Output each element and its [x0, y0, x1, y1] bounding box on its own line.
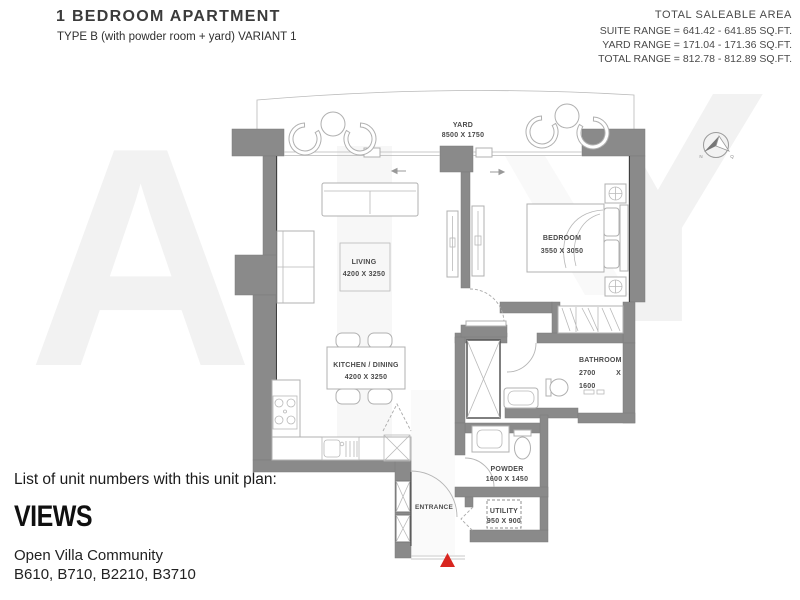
views-logo: VIEWS — [14, 500, 92, 534]
nightstand-icon — [605, 277, 626, 296]
svg-text:2700: 2700 — [579, 370, 596, 377]
headboard — [620, 205, 628, 271]
label-yard: YARD — [453, 122, 473, 129]
svg-text:N: N — [699, 154, 702, 159]
pillow-icon — [604, 208, 619, 236]
page-title: 1 BEDROOM APARTMENT — [56, 8, 281, 26]
label-living: LIVING — [352, 259, 377, 266]
unit-numbers: B610, B710, B2210, B3710 — [14, 566, 196, 583]
dining-chair-icon — [368, 333, 392, 348]
svg-text:X: X — [616, 370, 621, 377]
svg-text:8500 X 1750: 8500 X 1750 — [442, 132, 484, 139]
hall-pocket-door — [466, 321, 506, 326]
saleable-area-heading: TOTAL SALEABLE AREA — [598, 9, 792, 21]
svg-text:3550 X 3050: 3550 X 3050 — [541, 248, 583, 255]
svg-text:4200 X 3250: 4200 X 3250 — [343, 271, 385, 278]
pillow-icon — [604, 240, 619, 268]
community-name: Open Villa Community — [14, 547, 163, 564]
floor-shade — [411, 390, 455, 555]
label-utility: UTILITY — [490, 508, 518, 515]
powder-toilet-icon — [514, 430, 531, 459]
total-range: TOTAL RANGE = 812.78 - 812.89 SQ.FT. — [598, 52, 792, 66]
saleable-area-block: TOTAL SALEABLE AREA SUITE RANGE = 641.42… — [598, 9, 792, 66]
unit-list-heading: List of unit numbers with this unit plan… — [14, 471, 277, 489]
shaft-icon — [396, 481, 410, 542]
kitchen-counter — [272, 380, 300, 437]
shower-icon — [467, 340, 500, 418]
compass-icon: N Q — [699, 133, 734, 160]
toilet-icon — [546, 379, 568, 396]
floor-plan: N Q YARD 8500 X 1750 LIVING 4200 X 3250 … — [0, 0, 800, 600]
svg-text:950 X 900: 950 X 900 — [487, 518, 521, 525]
svg-text:1600 X 1450: 1600 X 1450 — [486, 476, 528, 483]
dining-chair-icon — [368, 389, 392, 404]
nightstand-icon — [605, 184, 626, 203]
kitchen-counter — [272, 437, 411, 460]
svg-text:4200 X 3250: 4200 X 3250 — [345, 374, 387, 381]
dining-chair-icon — [336, 333, 360, 348]
label-kitchen: KITCHEN / DINING — [333, 362, 399, 369]
yard-table-icon — [321, 112, 345, 136]
yard-range: YARD RANGE = 171.04 - 171.36 SQ.FT. — [598, 38, 792, 52]
floorplan-sheet: A Y — [0, 0, 800, 600]
page-subtitle: TYPE B (with powder room + yard) VARIANT… — [57, 31, 297, 43]
wardrobe-icon — [558, 306, 623, 333]
dining-chair-icon — [336, 389, 360, 404]
label-powder: POWDER — [491, 466, 524, 473]
svg-text:Q: Q — [730, 154, 734, 159]
label-bathroom: BATHROOM — [579, 357, 622, 364]
label-entrance: ENTRANCE — [415, 504, 454, 511]
suite-range: SUITE RANGE = 641.42 - 641.85 SQ.FT. — [598, 24, 792, 38]
svg-text:1600: 1600 — [579, 383, 596, 390]
yard-table-icon — [555, 104, 579, 128]
label-bedroom: BEDROOM — [543, 235, 581, 242]
